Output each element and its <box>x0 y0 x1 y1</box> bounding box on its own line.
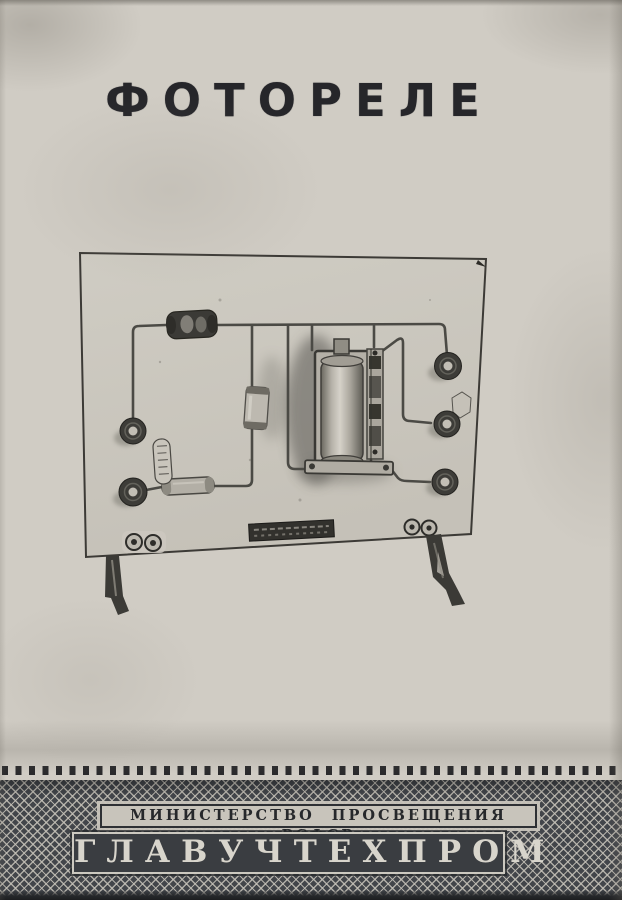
page-bottom-edge <box>0 891 622 900</box>
capacitor <box>244 386 270 430</box>
ministry-plate: МИНИСТЕРСТВО ПРОСВЕЩЕНИЯ РСФСР <box>100 804 537 828</box>
contact-stack <box>367 349 383 459</box>
terminal-screw <box>405 520 420 535</box>
terminal-screw <box>145 535 161 551</box>
terminal-screw <box>126 534 142 550</box>
device-photo <box>60 240 540 630</box>
mounting-foot-left <box>105 555 129 615</box>
spec-label <box>152 438 172 484</box>
resistor-top <box>165 310 217 340</box>
dotted-divider <box>2 766 620 775</box>
cover-title: ФОТОРЕЛЕ <box>0 74 610 127</box>
publisher-label: ГЛАВУЧТЕХПРОМ <box>74 834 555 870</box>
publisher-plate: ГЛАВУЧТЕХПРОМ <box>72 832 505 874</box>
terminal-screw <box>422 521 437 536</box>
booklet-cover: ФОТОРЕЛЕ <box>0 0 622 900</box>
mounting-foot-right <box>426 534 465 606</box>
